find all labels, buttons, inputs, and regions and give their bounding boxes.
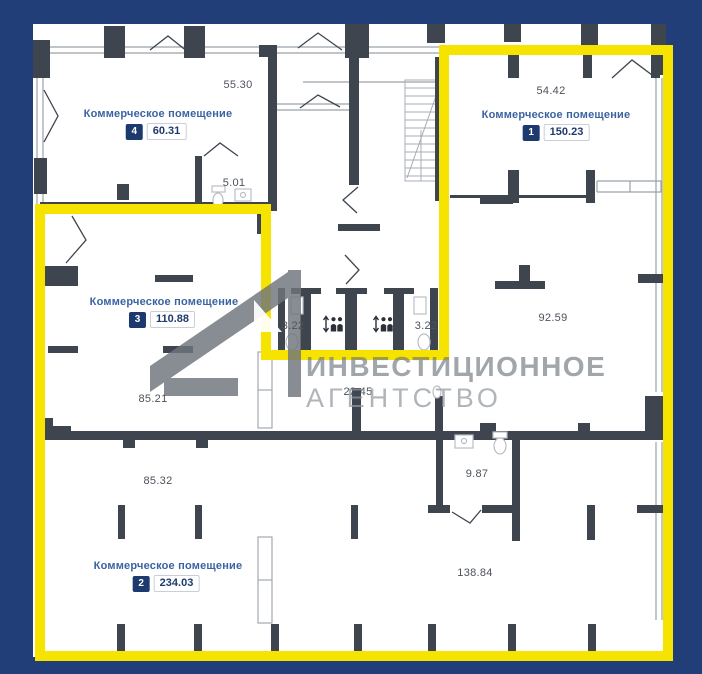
- room-1-label: Коммерческое помещение: [482, 109, 631, 121]
- room-3-area: 110.88: [150, 311, 195, 328]
- room-3-badge[interactable]: 3 110.88: [129, 311, 195, 328]
- watermark-line1: ИНВЕСТИЦИОННОЕ: [306, 351, 606, 383]
- room-1-badge[interactable]: 1 150.23: [523, 124, 590, 141]
- toilet-icon: [494, 438, 506, 454]
- room-3-label: Коммерческое помещение: [90, 296, 239, 308]
- area-label-wc-bottom: 9.87: [466, 468, 489, 480]
- area-label-wc-top: 5.01: [223, 177, 246, 189]
- room-1-area: 150.23: [544, 124, 590, 141]
- floorplan-screenshot: 55.30 5.01 54.42 3.22 3.22 92.59 85.21 2…: [0, 0, 702, 674]
- toilet-icon: [418, 334, 430, 350]
- sink-icon: [241, 193, 246, 198]
- area-label-shaft-left: 3.22: [282, 320, 305, 332]
- room-4-number: 4: [126, 124, 143, 140]
- watermark-line2: АГЕНТСТВО: [306, 383, 502, 414]
- area-label-top-middle: 55.30: [223, 79, 252, 91]
- floor-plan-svg: [0, 0, 702, 674]
- area-label-lower-left: 85.32: [143, 475, 172, 487]
- room-3-number: 3: [129, 312, 146, 328]
- room-2-number: 2: [133, 576, 150, 592]
- room-1-number: 1: [523, 125, 540, 141]
- room-4-area: 60.31: [147, 123, 187, 140]
- room-4-label: Коммерческое помещение: [84, 108, 233, 120]
- area-label-room1-mid: 92.59: [538, 312, 567, 324]
- room-4-badge[interactable]: 4 60.31: [126, 123, 187, 140]
- room-2-label: Коммерческое помещение: [94, 560, 243, 572]
- door-leaf-icon: [414, 297, 426, 314]
- room-2-badge[interactable]: 2 234.03: [133, 575, 200, 592]
- room-2-area: 234.03: [154, 575, 200, 592]
- area-label-room1-top: 54.42: [536, 85, 565, 97]
- area-label-bottom-right: 138.84: [457, 567, 492, 579]
- area-label-mid-left: 85.21: [138, 393, 167, 405]
- area-label-shaft-right: 3.22: [415, 320, 438, 332]
- sink-icon: [462, 439, 467, 444]
- toilet-icon: [493, 432, 507, 438]
